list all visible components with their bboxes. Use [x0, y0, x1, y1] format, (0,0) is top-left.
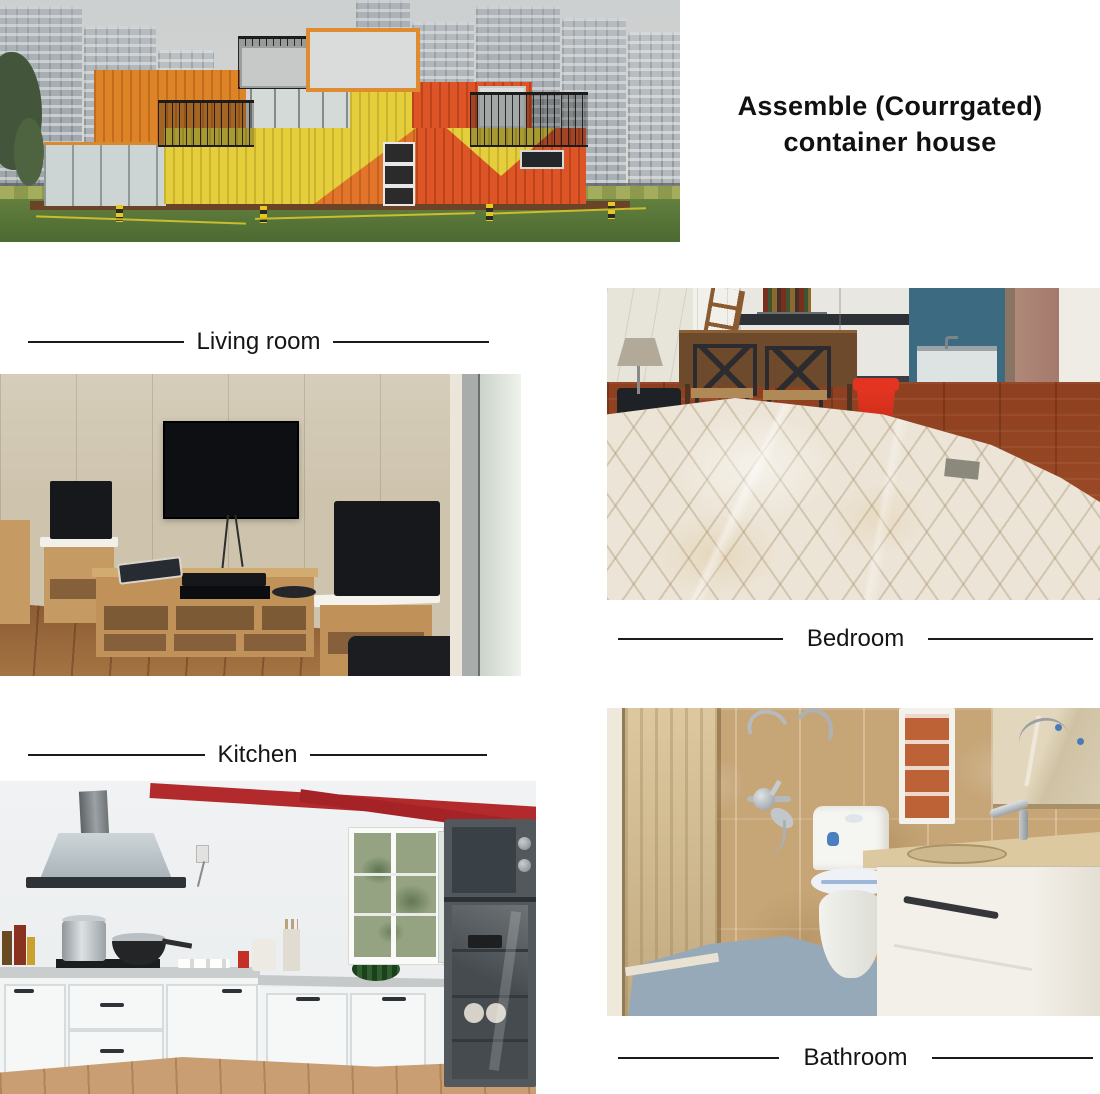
small-bowls	[178, 959, 230, 968]
photo-bedroom	[607, 288, 1100, 600]
divider-line	[28, 754, 205, 756]
roof-box	[240, 46, 308, 88]
window-glass	[905, 714, 949, 818]
kitchen-label: Kitchen	[205, 741, 309, 769]
dark-window	[383, 142, 415, 164]
hood-chimney	[79, 790, 109, 835]
stand-shelf-gap	[176, 606, 254, 630]
door-jamb	[462, 374, 478, 676]
tall-cabinet-top-glass	[452, 827, 516, 893]
cabinet-handle	[296, 997, 320, 1001]
tv	[163, 421, 299, 519]
speaker-left	[50, 481, 112, 539]
tree	[14, 118, 44, 186]
chair-seat	[691, 388, 753, 398]
chair-seat	[763, 390, 827, 400]
glass-wall-lower	[44, 142, 166, 206]
door-frame	[450, 374, 462, 676]
kettle	[252, 939, 276, 971]
page-title-line1: Assemble (Courrgated)	[680, 88, 1100, 124]
window-bar	[354, 913, 436, 916]
photo-living-room	[0, 374, 521, 676]
cabinet-handle	[222, 989, 242, 993]
cabinet-handle	[100, 1049, 124, 1053]
cabinet-handle	[14, 989, 34, 993]
section-label-kitchen: Kitchen	[28, 741, 487, 769]
balcony-railing-left	[158, 100, 254, 147]
dark-window	[520, 150, 564, 169]
red-stool-top	[853, 378, 899, 391]
bedroom-label: Bedroom	[783, 625, 928, 653]
side-table-far	[0, 520, 30, 624]
page-title-line2: container house	[680, 124, 1100, 160]
stand-shelf-row	[104, 634, 306, 651]
bathroom-label: Bathroom	[779, 1044, 931, 1072]
cable-coil	[272, 586, 316, 598]
range-hood	[40, 833, 172, 879]
flush-button	[845, 814, 863, 823]
red-can	[238, 951, 249, 968]
kitchenette-faucet	[945, 336, 958, 349]
vanity-cabinet	[877, 866, 1100, 1016]
balcony-railing-right	[470, 92, 588, 147]
divider-line	[932, 1057, 1093, 1059]
condiment-bottle	[14, 925, 26, 965]
condiment-bottle	[2, 931, 12, 965]
blue-fitting	[1055, 724, 1062, 731]
left-trim	[607, 708, 622, 1016]
dark-window	[383, 186, 415, 206]
photo-kitchen	[0, 781, 536, 1094]
divider-line	[28, 341, 184, 343]
cabinet-shelf-line	[452, 995, 528, 998]
cabinet-handle	[100, 1003, 124, 1007]
tall-cabinet-seam	[444, 897, 536, 902]
section-label-bedroom: Bedroom	[618, 625, 1093, 653]
page-title: Assemble (Courrgated) container house	[680, 88, 1100, 160]
faucet-body	[1019, 810, 1028, 840]
blue-fitting	[1077, 738, 1084, 745]
cabinet-knob	[518, 837, 531, 850]
window-bar	[354, 873, 436, 876]
divider-line	[618, 1057, 779, 1059]
photo-container-house-exterior	[0, 0, 680, 242]
dvd-player	[182, 573, 266, 586]
divider-line	[310, 754, 487, 756]
door-glass	[480, 374, 521, 676]
stand-shelf-gap	[104, 606, 168, 630]
divider-line	[928, 638, 1093, 640]
bookshelf-books	[763, 288, 811, 312]
mattress-label-tag	[944, 458, 980, 479]
divider-line	[333, 341, 489, 343]
range-hood-base	[26, 877, 186, 888]
towel-roll	[464, 1003, 484, 1023]
cabinet-shelf-line	[452, 1039, 528, 1042]
caution-post	[608, 202, 615, 219]
cabinet-door	[4, 984, 66, 1074]
cabinet-drawer	[68, 984, 164, 1030]
utensil-holder	[283, 929, 300, 971]
pot-silhouette	[468, 935, 502, 948]
cabinet-handle	[382, 997, 406, 1001]
section-label-living-room: Living room	[28, 328, 489, 356]
seat-blue-stripe	[821, 880, 883, 884]
section-label-bathroom: Bathroom	[618, 1044, 1093, 1072]
sink-basin	[907, 844, 1007, 864]
toilet-decal	[827, 832, 839, 846]
counter-top-left	[0, 967, 260, 978]
steamer-pot	[62, 921, 106, 961]
caution-post	[260, 206, 267, 223]
product-gallery-page: Assemble (Courrgated) container house Li…	[0, 0, 1100, 1094]
roof-box-orange-frame	[306, 28, 420, 92]
condiment-bottle	[27, 937, 35, 965]
window-mullion	[391, 833, 396, 957]
subwoofer	[348, 636, 460, 676]
cabinet-knob	[518, 859, 531, 872]
photo-bathroom	[607, 708, 1100, 1016]
living-room-label: Living room	[184, 328, 332, 356]
cabinet-shelf-line	[452, 949, 528, 952]
amplifier	[180, 586, 270, 599]
divider-line	[618, 638, 783, 640]
dark-window	[383, 164, 415, 186]
stand-shelf-gap	[262, 606, 306, 630]
lamp-pole	[637, 366, 640, 394]
speaker-right	[334, 501, 440, 596]
